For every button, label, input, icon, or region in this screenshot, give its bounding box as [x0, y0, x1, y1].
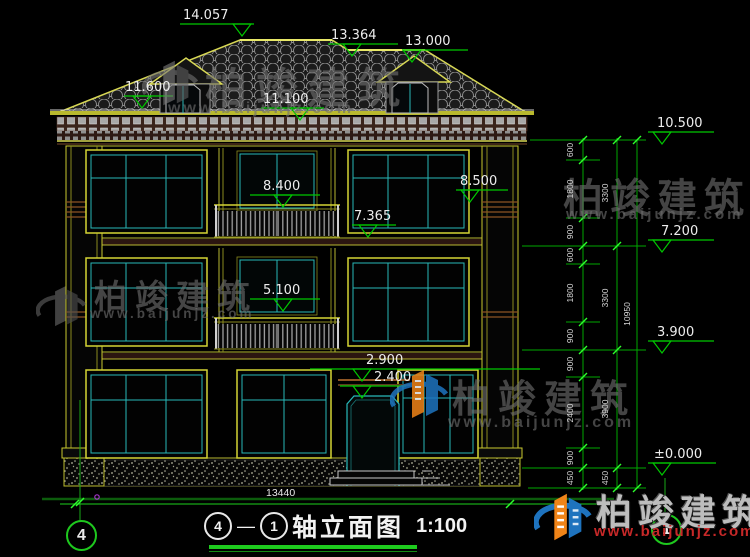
dim-total-height: 10950: [622, 302, 632, 326]
dim-floor: 450: [600, 471, 610, 485]
axis-number: 4: [77, 527, 86, 545]
elevation-label-right-slab2: 3.900: [657, 325, 694, 340]
title-axis-left: 4: [204, 512, 232, 540]
elevation-label-eave-left: 11.600: [125, 80, 171, 95]
title-dash: —: [237, 516, 255, 537]
elevation-label-ridge: 14.057: [183, 8, 229, 23]
dim-floor: 3900: [600, 400, 610, 419]
dim-total-width: 13440: [266, 487, 295, 499]
dim-detail: 600: [565, 248, 575, 262]
elevation-label-slab-f3: 7.365: [354, 209, 391, 224]
elevation-label-balcony-f2: 5.100: [263, 283, 300, 298]
title-underline-thin: [209, 551, 417, 552]
dim-detail: 900: [565, 225, 575, 239]
title-text: 轴立面图: [292, 508, 404, 544]
cad-elevation-screenshot: 柏竣建筑 www.baijunjz.com 柏竣建筑 www.baijunjz.…: [0, 0, 750, 557]
dim-detail: 450: [565, 471, 575, 485]
drawing-title: 4 — 1 轴立面图 1:100: [204, 508, 467, 544]
title-underline: [209, 545, 417, 549]
title-axis-right: 1: [260, 512, 288, 540]
window-f2-right: [348, 258, 469, 346]
dim-detail: 1800: [565, 180, 575, 199]
elevation-label-canopy-top: 2.900: [366, 353, 403, 368]
title-scale: 1:100: [416, 515, 467, 538]
pilaster-right: [478, 146, 522, 486]
window-f3-left: [86, 150, 207, 233]
elevation-label-right-slab3: 7.200: [661, 224, 698, 239]
brand-url: www.baijunjz.com: [594, 523, 750, 540]
dim-detail: 2400: [565, 404, 575, 423]
elevation-label-canopy-bottom: 2.400: [374, 370, 411, 385]
elevation-label-balcony-f3: 8.400: [263, 179, 300, 194]
dim-detail: 900: [565, 451, 575, 465]
elevation-label-eave-main: 11.100: [263, 92, 309, 107]
elevation-label-right-eave: 10.500: [657, 116, 703, 131]
watermark-url: www.baijunjz.com: [566, 206, 743, 223]
dim-floor: 3300: [600, 184, 610, 203]
dim-detail: 1800: [565, 284, 575, 303]
watermark-url: www.baijunjz.com: [168, 100, 354, 118]
watermark-url: www.baijunjz.com: [90, 306, 255, 321]
elevation-label-right-ground: ±0.000: [654, 447, 702, 462]
dim-detail: 900: [565, 357, 575, 371]
elevation-label-dormer: 13.000: [405, 34, 451, 49]
elevation-label-ridge2: 13.364: [331, 28, 377, 43]
cornice: [57, 117, 527, 144]
dim-detail: 600: [565, 143, 575, 157]
window-f1-center: [237, 370, 331, 458]
axis-bubble-4: 4: [66, 520, 97, 551]
window-f1-left: [86, 370, 207, 458]
dim-floor: 3300: [600, 289, 610, 308]
elevation-label-porch: 8.500: [460, 174, 497, 189]
dim-detail: 900: [565, 329, 575, 343]
